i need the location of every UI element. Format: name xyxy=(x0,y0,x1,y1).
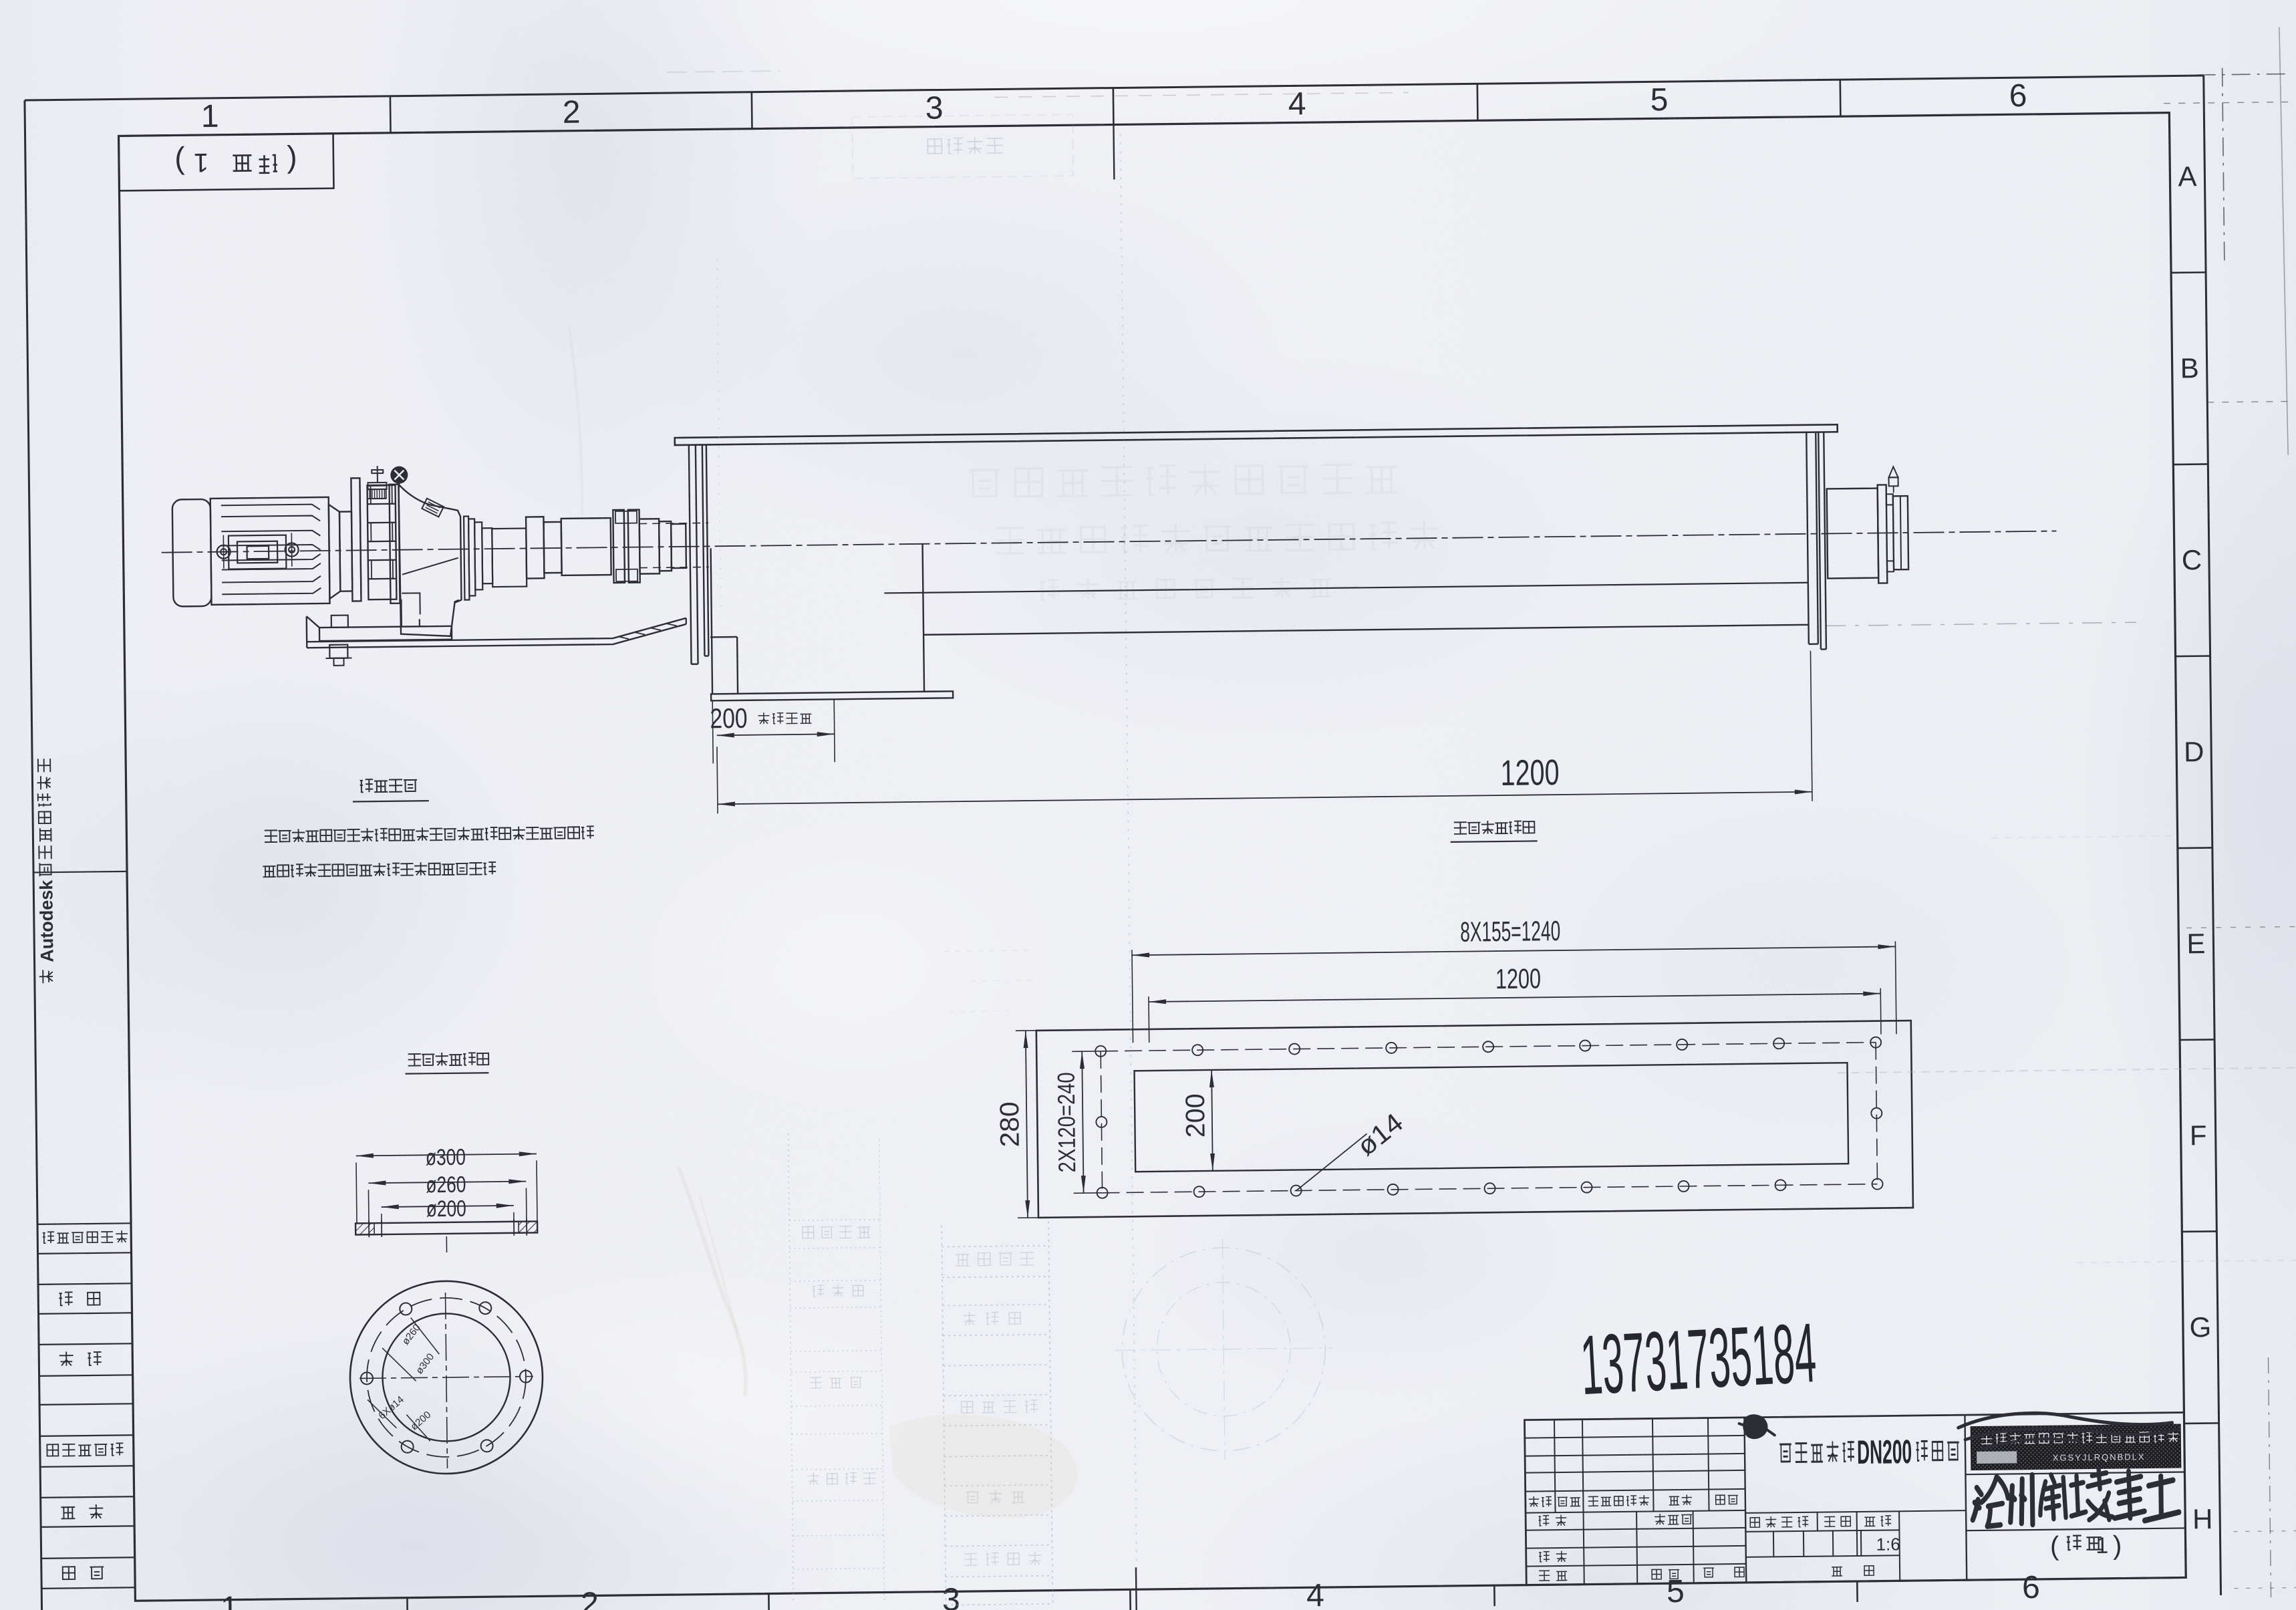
svg-text:Autodesk: Autodesk xyxy=(36,880,57,962)
svg-text:C: C xyxy=(2182,544,2202,575)
svg-text:(: ( xyxy=(2050,1532,2059,1561)
svg-text:F: F xyxy=(2190,1119,2207,1151)
svg-text:D: D xyxy=(2184,736,2204,767)
svg-text:200: 200 xyxy=(1181,1093,1211,1137)
svg-text:B: B xyxy=(2180,352,2199,384)
svg-text:1: 1 xyxy=(221,1591,239,1610)
svg-text:XGSYJLRQNBDLX: XGSYJLRQNBDLX xyxy=(2053,1452,2146,1463)
svg-text:(: ( xyxy=(286,144,297,179)
svg-text:A: A xyxy=(2178,160,2197,192)
svg-text:13731735184: 13731735184 xyxy=(1578,1305,1818,1412)
svg-text:2X120=240: 2X120=240 xyxy=(1052,1072,1081,1172)
svg-text:5: 5 xyxy=(1650,82,1668,118)
svg-text:ø260: ø260 xyxy=(426,1172,466,1198)
svg-text:2: 2 xyxy=(563,95,581,130)
svg-text:3: 3 xyxy=(942,1582,960,1610)
svg-text:1200: 1200 xyxy=(1500,753,1560,793)
svg-text:3: 3 xyxy=(925,90,944,126)
svg-text:280: 280 xyxy=(995,1101,1025,1147)
svg-text:): ) xyxy=(174,146,185,180)
svg-text:E: E xyxy=(2186,928,2206,959)
svg-text:DN200: DN200 xyxy=(1857,1433,1912,1471)
svg-text:ø300: ø300 xyxy=(426,1145,466,1171)
svg-text:1:6: 1:6 xyxy=(1876,1534,1900,1554)
svg-text:6: 6 xyxy=(2009,78,2027,114)
svg-text:ø200: ø200 xyxy=(426,1196,466,1222)
svg-text:1: 1 xyxy=(201,99,219,134)
svg-text:1200: 1200 xyxy=(1495,962,1542,994)
svg-text:2: 2 xyxy=(581,1586,599,1610)
svg-text:200: 200 xyxy=(710,702,748,734)
svg-text:): ) xyxy=(2113,1531,2122,1561)
svg-text:4: 4 xyxy=(1288,86,1306,122)
svg-text:G: G xyxy=(2189,1311,2211,1343)
svg-text:4: 4 xyxy=(1306,1578,1324,1610)
svg-text:H: H xyxy=(2192,1503,2213,1534)
svg-text:6: 6 xyxy=(2022,1570,2040,1605)
svg-text:1: 1 xyxy=(194,148,209,177)
svg-text:8X155=1240: 8X155=1240 xyxy=(1460,915,1561,948)
